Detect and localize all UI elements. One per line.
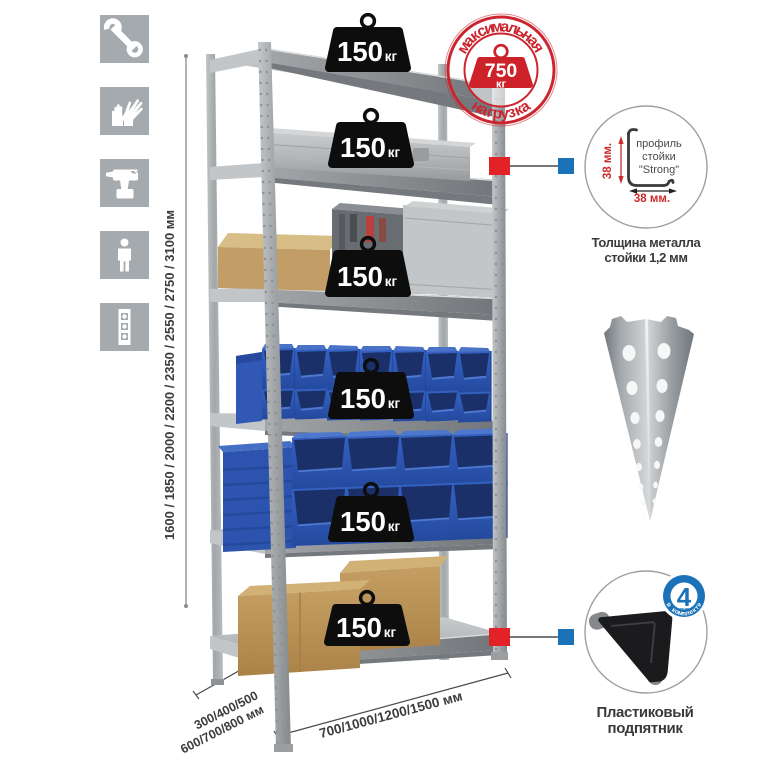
svg-text:150: 150 [340,132,386,163]
svg-text:Толщина металла: Толщина металла [592,235,702,250]
svg-text:38 мм.: 38 мм. [634,193,670,205]
svg-text:кг: кг [388,519,401,534]
svg-text:штуки: штуки [677,607,691,612]
svg-text:150: 150 [337,261,383,292]
svg-text:1600 / 1850 / 2000 / 2200 / 23: 1600 / 1850 / 2000 / 2200 / 2350 / 2550 … [162,210,177,540]
svg-text:150: 150 [336,612,382,643]
svg-text:кг: кг [384,625,397,640]
svg-text:профиль: профиль [636,138,682,150]
svg-text:подпятник: подпятник [608,720,684,737]
svg-text:кг: кг [385,49,398,64]
svg-text:38 мм.: 38 мм. [602,143,614,179]
svg-text:150: 150 [340,506,386,537]
svg-text:кг: кг [388,145,401,160]
svg-text:150: 150 [337,36,383,67]
svg-text:кг: кг [388,396,401,411]
svg-text:стойки: стойки [642,151,676,163]
svg-text:"Strong": "Strong" [639,164,679,176]
svg-text:кг: кг [496,79,507,91]
svg-text:150: 150 [340,383,386,414]
svg-text:кг: кг [385,274,398,289]
svg-text:стойки 1,2 мм: стойки 1,2 мм [604,250,687,265]
svg-text:Пластиковый: Пластиковый [597,704,694,721]
